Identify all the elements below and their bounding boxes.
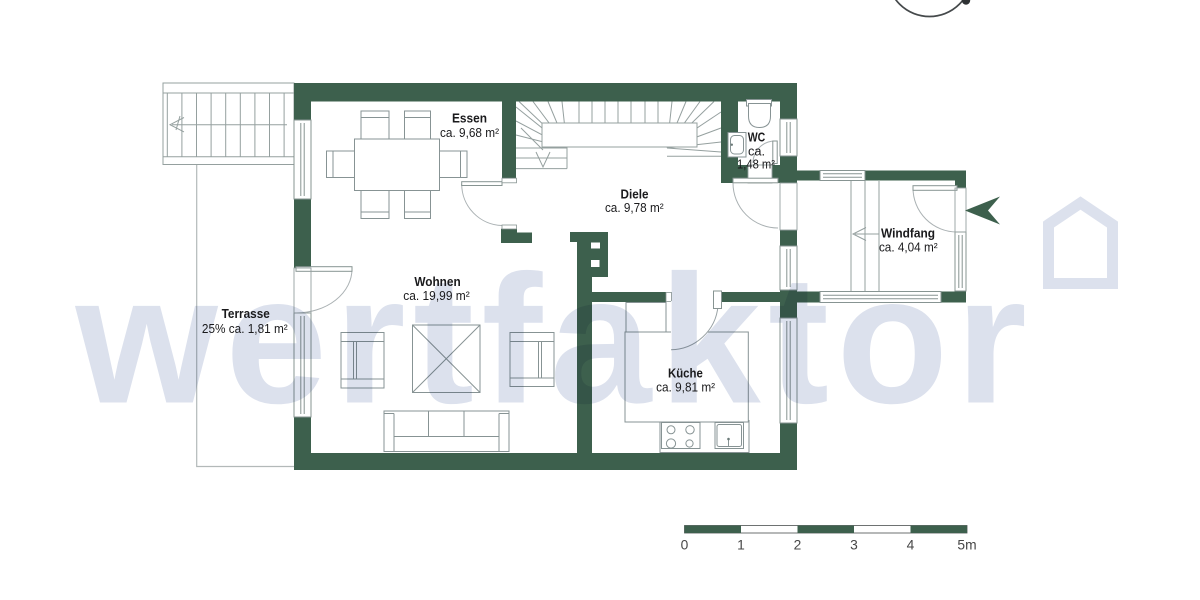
svg-text:1: 1 [737, 538, 745, 553]
svg-text:ca. 9,81 m²: ca. 9,81 m² [656, 380, 716, 395]
svg-text:Windfang: Windfang [881, 226, 935, 241]
svg-text:Küche: Küche [668, 366, 703, 381]
svg-text:4: 4 [907, 538, 915, 553]
svg-text:0: 0 [681, 538, 689, 553]
svg-text:Wohnen: Wohnen [414, 274, 460, 289]
svg-text:3: 3 [850, 538, 858, 553]
svg-text:5m: 5m [957, 538, 976, 553]
svg-text:25% ca. 1,81 m²: 25% ca. 1,81 m² [202, 321, 288, 336]
svg-text:ca. 4,04 m²: ca. 4,04 m² [879, 240, 938, 255]
svg-text:Terrasse: Terrasse [222, 306, 270, 321]
svg-text:2: 2 [794, 538, 802, 553]
svg-text:ca. 9,78 m²: ca. 9,78 m² [605, 200, 664, 215]
svg-text:Essen: Essen [452, 111, 487, 126]
svg-text:ca. 9,68 m²: ca. 9,68 m² [440, 125, 500, 140]
svg-text:wertfaktor: wertfaktor [75, 237, 1035, 442]
svg-text:1,48 m²: 1,48 m² [737, 157, 776, 172]
svg-text:WC: WC [748, 130, 766, 145]
svg-text:ca. 19,99 m²: ca. 19,99 m² [403, 288, 470, 303]
